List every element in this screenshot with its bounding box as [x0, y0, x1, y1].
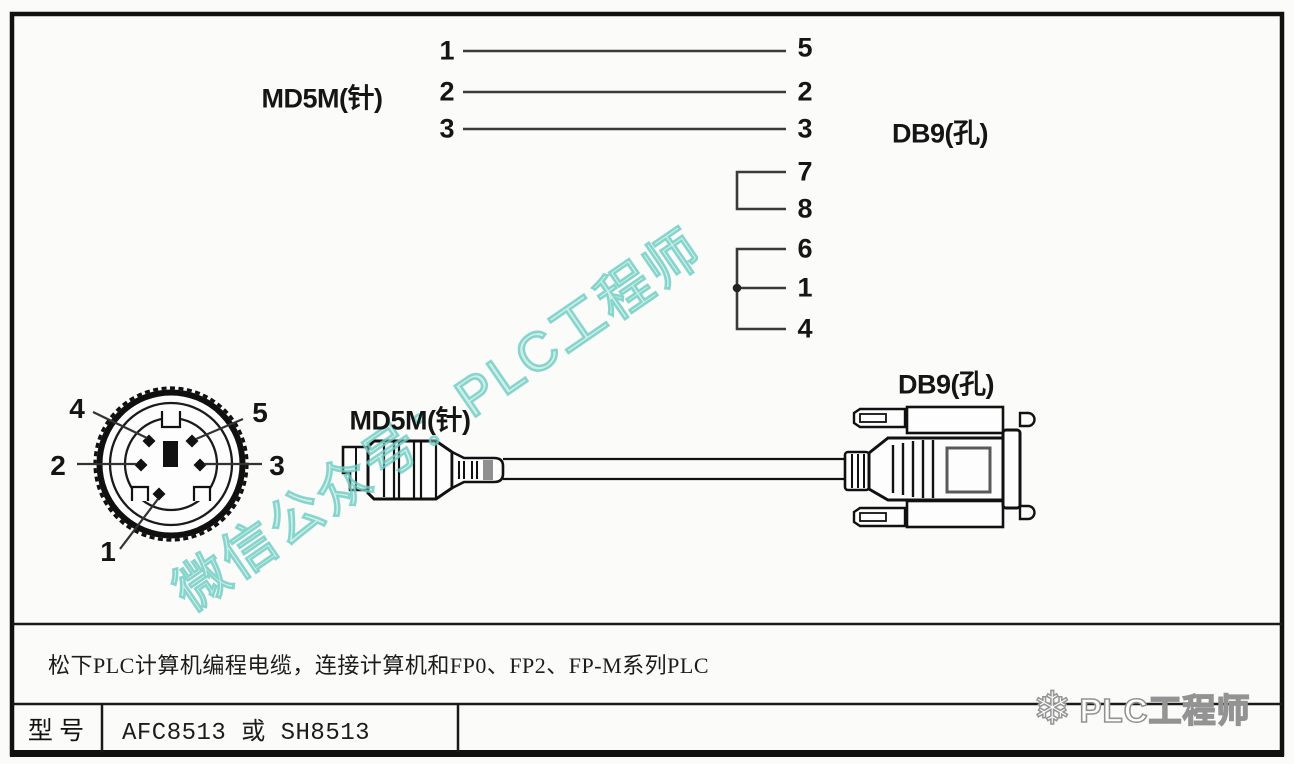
brand-logo: ❄ PLC工程师 — [1033, 684, 1251, 732]
din-face-pin-label: 5 — [252, 397, 268, 429]
cable-md5m-label: MD5M(针) — [350, 399, 471, 438]
drawing-frame — [10, 14, 1284, 754]
jumper-6-1-4 — [737, 249, 786, 329]
jumper-7-8 — [737, 172, 786, 209]
din-face-pin-label: 3 — [269, 450, 285, 482]
schematic-md5m-label: MD5M(针) — [262, 77, 383, 116]
db9-pin-number: 7 — [797, 157, 812, 188]
db9-pin-number: 3 — [797, 114, 812, 145]
db9-pin-number: 1 — [797, 273, 812, 304]
schematic-db9-label: DB9(孔) — [892, 112, 988, 151]
din-face-pin-label: 4 — [69, 393, 85, 425]
md5m-plug-drawing — [343, 441, 846, 499]
md5m-face-drawing — [77, 388, 262, 549]
jackscrew-top — [1020, 413, 1035, 426]
db9-pin-number: 4 — [797, 314, 812, 345]
model-row-value: AFC8513 或 SH8513 — [122, 711, 370, 747]
snowflake-icon: ❄ — [1033, 685, 1072, 731]
schematic-wires — [463, 51, 786, 129]
key-slot — [163, 441, 178, 467]
md5m-pin-number: 3 — [439, 114, 454, 145]
md5m-pin-number: 1 — [439, 36, 454, 67]
cable-description: 松下PLC计算机编程电缆，连接计算机和FP0、FP2、FP-M系列PLC — [48, 648, 709, 680]
brand-logo-text: PLC工程师 — [1080, 684, 1251, 732]
db9-pin-number: 5 — [797, 33, 812, 64]
din-face-pin-label: 1 — [100, 536, 116, 568]
wiring-diagram-page: 微信公众号：PLC工程师 MD5M(针) DB9(孔) 1 2 3 5 2 3 … — [0, 0, 1294, 764]
db9-connector-drawing — [845, 407, 1035, 527]
db9-pin-number: 8 — [797, 194, 812, 225]
cable-db9-label: DB9(孔) — [898, 363, 994, 402]
jumper-junction-dot — [733, 284, 742, 293]
db9-pin-number: 2 — [797, 77, 812, 108]
md5m-pin-number: 2 — [439, 77, 454, 108]
din-face-pin-label: 2 — [50, 450, 66, 482]
jackscrew-bottom — [1020, 506, 1035, 519]
db9-pin-number: 6 — [797, 234, 812, 265]
model-row-label: 型 号 — [28, 711, 84, 747]
